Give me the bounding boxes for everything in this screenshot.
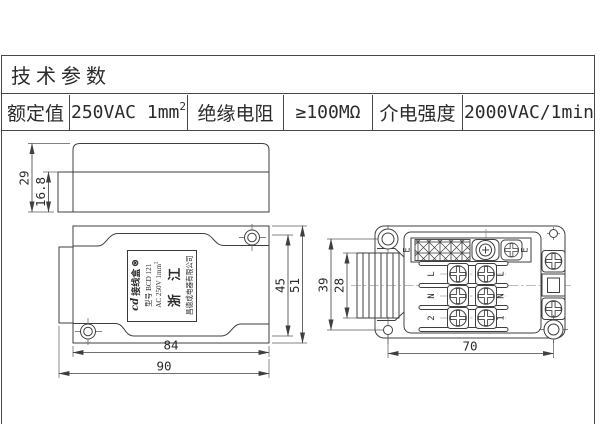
plate-region: 浙 江 — [164, 263, 183, 307]
dim-side-base-height: 16.8 — [33, 177, 48, 207]
terminal-view: E E L N — [316, 225, 574, 358]
plate-brand-line: cd 接线盒 ⊛ — [129, 259, 142, 311]
dim-top-body-width: 84 — [163, 338, 178, 353]
dim-top-overall-height: 51 — [287, 278, 302, 293]
technical-drawing: 29 16.8 — [0, 0, 600, 424]
dim-side-total-height: 29 — [17, 170, 32, 185]
dim-top-overall-width: 90 — [156, 359, 171, 374]
dim-top-body-height: 45 — [273, 278, 288, 293]
row-label-left-1: L — [427, 271, 437, 276]
row-label-right-3: 1 — [497, 315, 507, 320]
plate-company: 昌德成电器有限公司 — [184, 255, 195, 314]
earth-label-left: E — [403, 247, 413, 252]
plate-rating-text: AC 250V 1mm — [154, 264, 163, 308]
dim-terminal-screw-span-h: 70 — [462, 339, 477, 354]
drawing-sheet: 技术参数 额定值 250VAC 1mm2 绝缘电阻 ≥100MΩ 介电强度 20… — [0, 0, 600, 424]
row-label-left-3: 2 — [427, 315, 437, 320]
plate-model: 型号 BCD 121 — [143, 263, 154, 306]
plate-rating: AC 250V 1mm2 — [154, 262, 163, 308]
plate-rating-sup: 2 — [155, 262, 160, 264]
dim-terminal-screw-span-v: 39 — [316, 277, 331, 292]
row-label-left-2: N — [427, 293, 437, 298]
side-view: 29 16.8 — [17, 144, 270, 213]
brand-logo: cd — [130, 298, 141, 311]
name-plate-content: cd 接线盒 ⊛ 型号 BCD 121 AC 250V 1mm2 浙 江 昌德成… — [129, 251, 195, 319]
product-name: 接线盒 — [129, 269, 142, 296]
earth-terminal-strip — [411, 238, 531, 262]
row-label-right-1: L — [497, 271, 507, 276]
dim-gland-height: 28 — [332, 278, 347, 293]
product-name-plate: cd 接线盒 ⊛ 型号 BCD 121 AC 250V 1mm2 浙 江 昌德成… — [127, 250, 197, 322]
row-label-right-2: N — [497, 293, 507, 298]
cert-mark-icon: ⊛ — [130, 259, 141, 267]
earth-label-right: E — [521, 247, 531, 252]
